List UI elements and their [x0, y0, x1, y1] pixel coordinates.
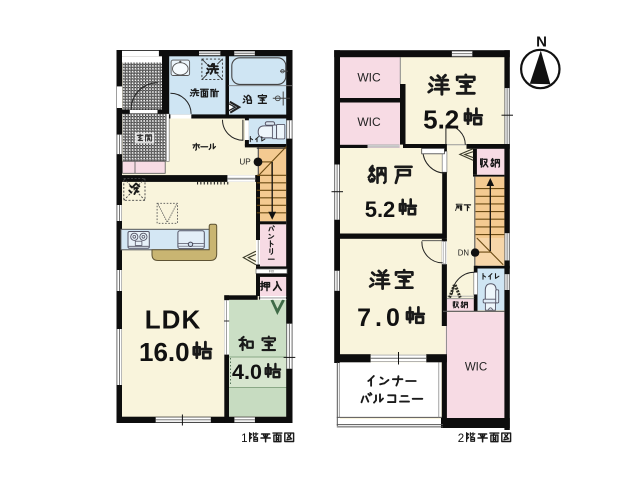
svg-text:5.2: 5.2 [365, 197, 396, 222]
svg-text:LDK: LDK [145, 305, 201, 335]
svg-text:UP: UP [239, 158, 251, 167]
svg-text:2: 2 [458, 433, 464, 445]
svg-text:DN: DN [458, 248, 469, 257]
svg-text:WIC: WIC [465, 362, 487, 374]
svg-text:7.0: 7.0 [357, 304, 404, 332]
svg-text:16.0: 16.0 [139, 337, 190, 367]
svg-text:1: 1 [241, 433, 247, 445]
svg-text:WIC: WIC [357, 71, 381, 85]
svg-text:FIX: FIX [269, 269, 275, 273]
svg-text:WIC: WIC [357, 115, 381, 129]
svg-text:4.0: 4.0 [232, 360, 262, 384]
svg-text:5.2: 5.2 [423, 105, 459, 135]
svg-text:N: N [536, 34, 547, 51]
